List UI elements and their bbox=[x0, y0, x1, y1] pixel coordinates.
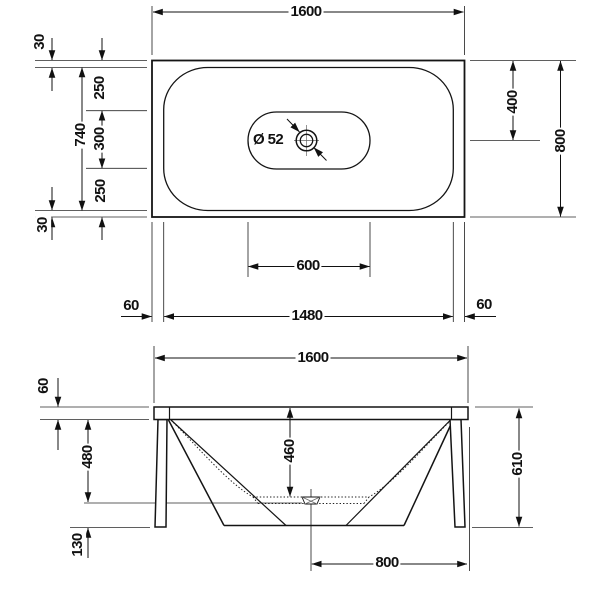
rim-bar bbox=[154, 407, 468, 420]
dim-plan-rim-edge-right: 60 bbox=[474, 297, 494, 313]
base-edge-left-inner bbox=[171, 420, 286, 526]
plan-view bbox=[35, 6, 576, 322]
base-edge-right-outer bbox=[404, 420, 453, 526]
dim-front-overall-width: 1600 bbox=[296, 350, 331, 366]
dim-plan-segment-bottom: 250 bbox=[93, 177, 109, 204]
dim-plan-rim-offset-bottom: 30 bbox=[35, 215, 51, 235]
dim-plan-flat-bottom-width: 600 bbox=[294, 258, 321, 274]
dim-plan-drain-offset: 400 bbox=[505, 88, 521, 115]
dim-plan-inner-length: 1480 bbox=[290, 308, 325, 324]
dim-plan-rim-offset-top: 30 bbox=[32, 32, 48, 52]
plan-tub-outer-outline bbox=[152, 61, 465, 218]
dim-plan-inner-width: 740 bbox=[73, 121, 89, 148]
dim-plan-overall-width: 1600 bbox=[289, 4, 324, 20]
bathtub-technical-drawing: 1600 30 250 300 250 30 740 400 800 Ø 52 … bbox=[0, 0, 600, 600]
leg-right bbox=[450, 420, 465, 528]
dim-front-interior-depth: 460 bbox=[282, 437, 298, 464]
dim-front-depth: 480 bbox=[80, 443, 96, 470]
dim-front-overall-height: 610 bbox=[510, 450, 526, 477]
dim-front-base-clearance: 130 bbox=[70, 531, 86, 558]
dim-plan-segment-middle: 300 bbox=[92, 125, 108, 152]
dim-plan-drain-diameter: Ø 52 bbox=[251, 132, 285, 148]
dim-plan-segment-top: 250 bbox=[92, 74, 108, 101]
leg-left bbox=[155, 420, 167, 528]
base-edge-right-inner bbox=[346, 421, 450, 526]
base-edge-left-outer bbox=[169, 420, 225, 526]
dim-plan-overall-depth: 800 bbox=[553, 127, 569, 154]
dim-front-rim-height: 60 bbox=[36, 376, 52, 396]
elevation-drain-fitting bbox=[302, 497, 320, 504]
dim-front-center-to-edge: 800 bbox=[373, 555, 400, 571]
dim-plan-rim-edge-left: 60 bbox=[121, 298, 141, 314]
